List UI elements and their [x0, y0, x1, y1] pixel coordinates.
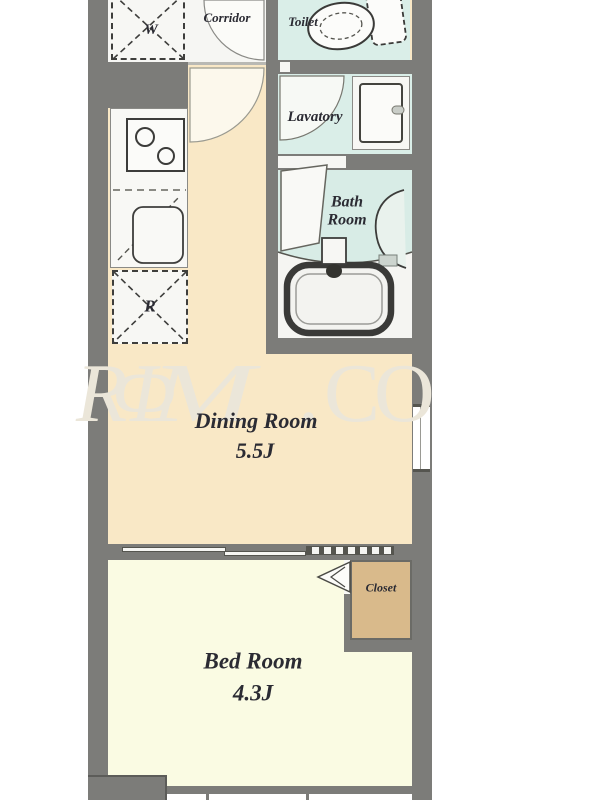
dining-door-arc-icon	[190, 68, 264, 142]
bathroom-label-line1: Bath	[327, 193, 366, 211]
refrigerator-space-label: R	[144, 298, 155, 317]
kitchen-sink-icon	[133, 207, 183, 263]
toilet-label: Toilet	[288, 15, 318, 29]
bedroom-size: 4.3J	[233, 680, 273, 705]
dining-room-size: 5.5J	[236, 439, 275, 463]
vanity-basin-icon	[360, 84, 404, 142]
toilet-icon	[304, 0, 406, 54]
bathroom-label-line2: Room	[327, 211, 366, 229]
bath-control-panel-icon	[379, 255, 397, 266]
lavatory-label: Lavatory	[288, 109, 343, 126]
bathtub-icon	[287, 238, 391, 333]
corridor-label: Corridor	[204, 11, 251, 25]
bath-door-leaf-icon	[281, 165, 327, 251]
bathroom-label: Bath Room	[327, 193, 366, 228]
washer-space-label: W	[144, 22, 157, 39]
closet-label: Closet	[366, 581, 397, 594]
dining-room-name: Dining Room	[195, 409, 318, 433]
stove-icon	[127, 119, 184, 171]
closet-accordion-door-icon	[318, 562, 350, 592]
bedroom-name: Bed Room	[203, 648, 302, 673]
floorplan: R Φ M . C O W Corridor Toilet Lavatory B…	[0, 0, 600, 800]
